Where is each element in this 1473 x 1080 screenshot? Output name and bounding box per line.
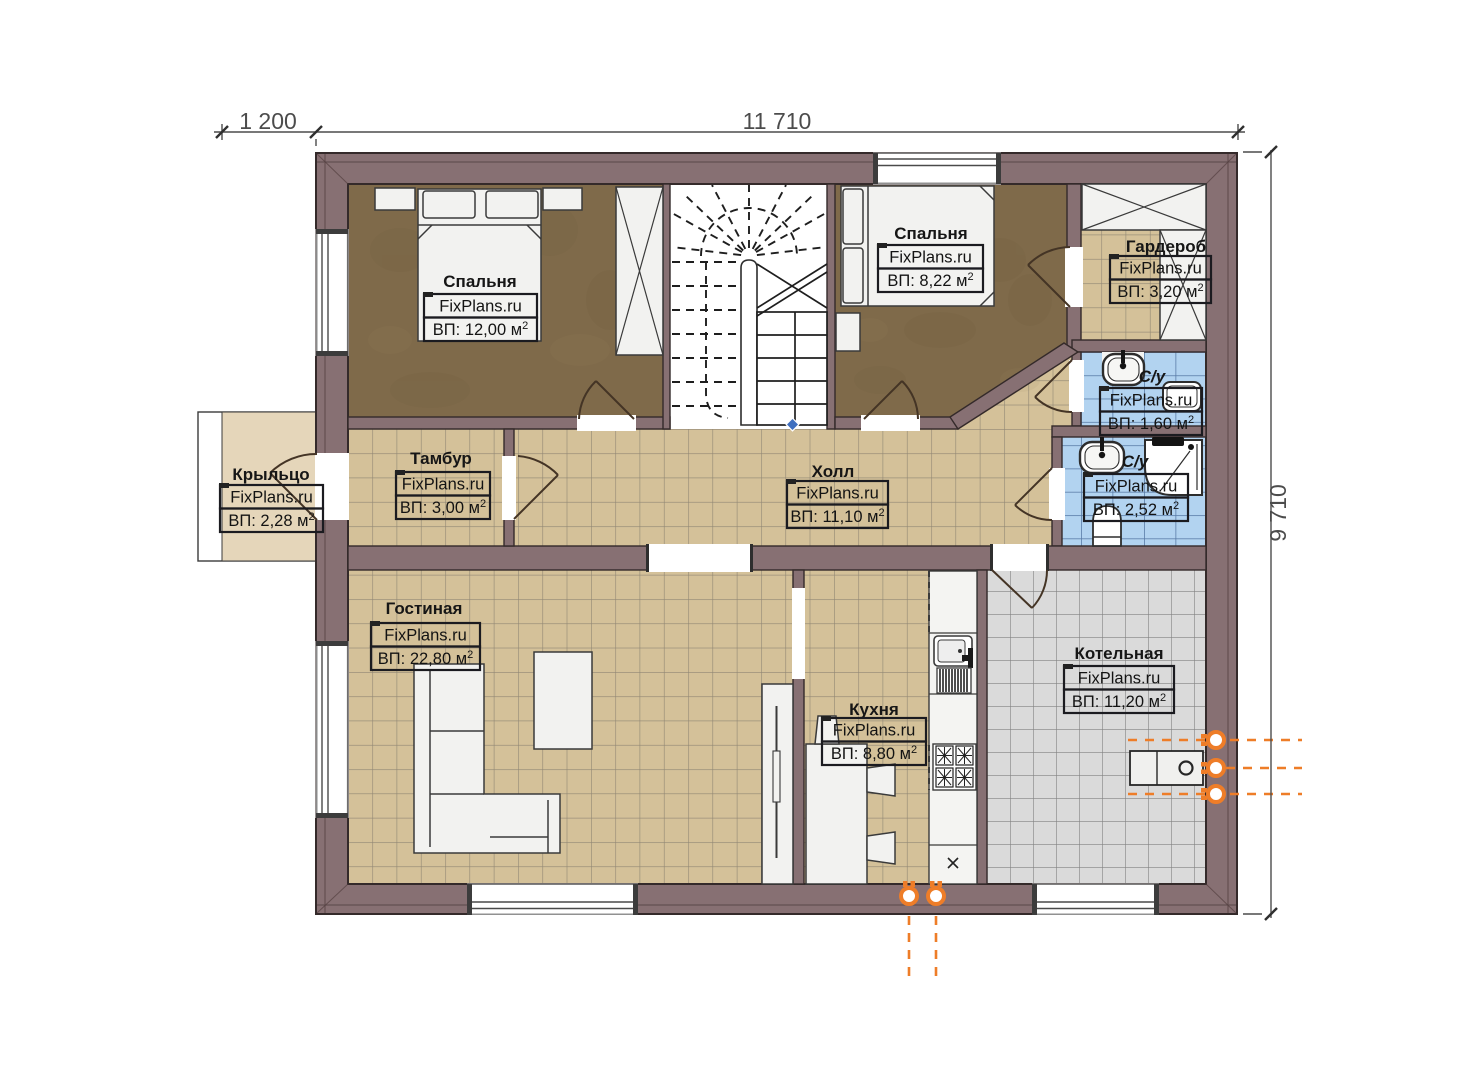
svg-text:1 200: 1 200: [239, 108, 297, 134]
svg-text:Спальня: Спальня: [443, 272, 516, 291]
svg-text:ВП: 11,20 м2: ВП: 11,20 м2: [1072, 692, 1166, 711]
svg-text:ВП: 22,80 м2: ВП: 22,80 м2: [378, 649, 473, 668]
svg-text:FixPlans.ru: FixPlans.ru: [439, 298, 522, 316]
svg-text:FixPlans.ru: FixPlans.ru: [796, 485, 879, 503]
svg-text:9 710: 9 710: [1265, 484, 1291, 542]
svg-text:С/у: С/у: [1139, 367, 1167, 386]
svg-text:ВП: 8,80 м2: ВП: 8,80 м2: [831, 744, 917, 763]
svg-text:Холл: Холл: [812, 462, 855, 481]
svg-text:ВП: 2,52 м2: ВП: 2,52 м2: [1093, 500, 1179, 519]
svg-text:11 710: 11 710: [743, 108, 812, 134]
svg-text:Гостиная: Гостиная: [386, 599, 463, 618]
svg-text:Котельная: Котельная: [1074, 644, 1163, 663]
svg-text:ВП: 3,20 м2: ВП: 3,20 м2: [1117, 282, 1203, 301]
svg-text:ВП: 2,28 м2: ВП: 2,28 м2: [228, 511, 314, 530]
svg-text:FixPlans.ru: FixPlans.ru: [1119, 260, 1202, 278]
svg-text:FixPlans.ru: FixPlans.ru: [230, 489, 313, 507]
svg-text:FixPlans.ru: FixPlans.ru: [1095, 478, 1178, 496]
svg-text:Крыльцо: Крыльцо: [232, 465, 309, 484]
svg-text:ВП: 8,22 м2: ВП: 8,22 м2: [887, 271, 973, 290]
svg-text:FixPlans.ru: FixPlans.ru: [889, 249, 972, 267]
svg-text:FixPlans.ru: FixPlans.ru: [384, 627, 467, 645]
svg-text:FixPlans.ru: FixPlans.ru: [833, 722, 916, 740]
svg-text:ВП: 12,00 м2: ВП: 12,00 м2: [433, 320, 528, 339]
svg-text:ВП: 1,60 м2: ВП: 1,60 м2: [1108, 414, 1194, 433]
svg-text:Спальня: Спальня: [894, 224, 967, 243]
svg-text:Кухня: Кухня: [849, 700, 899, 719]
svg-text:Тамбур: Тамбур: [410, 449, 472, 468]
svg-text:FixPlans.ru: FixPlans.ru: [402, 476, 485, 494]
svg-text:FixPlans.ru: FixPlans.ru: [1078, 670, 1161, 688]
svg-text:Гардероб: Гардероб: [1126, 237, 1206, 256]
svg-text:FixPlans.ru: FixPlans.ru: [1110, 392, 1193, 410]
svg-text:ВП: 11,10 м2: ВП: 11,10 м2: [790, 507, 884, 526]
svg-text:ВП: 3,00 м2: ВП: 3,00 м2: [400, 498, 486, 517]
svg-text:С/у: С/у: [1122, 452, 1150, 471]
